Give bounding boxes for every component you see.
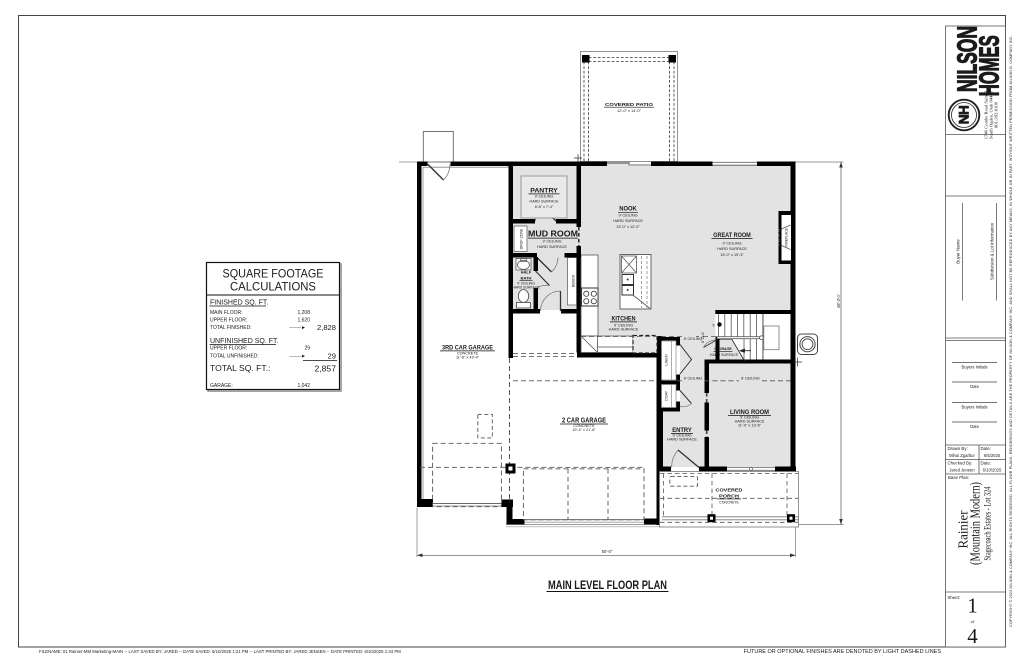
svg-text:BENCH: BENCH: [572, 274, 576, 287]
svg-text:Drawn By:: Drawn By:: [948, 446, 968, 451]
svg-text:Date:: Date:: [981, 461, 992, 466]
svg-text:NOOK: NOOK: [619, 206, 637, 213]
svg-text:UNFINISHED SQ. FT.: UNFINISHED SQ. FT.: [210, 338, 279, 345]
svg-text:Date:: Date:: [981, 446, 992, 451]
svg-text:48'-2¼": 48'-2¼": [836, 293, 841, 308]
svg-text:29: 29: [328, 352, 336, 361]
svg-text:Base Plan:: Base Plan:: [948, 475, 969, 480]
svg-text:15'-0" x 19'-3": 15'-0" x 19'-3": [720, 253, 744, 257]
svg-text:TOTAL SQ. FT.:: TOTAL SQ. FT.:: [210, 363, 270, 373]
svg-text:Stagecoach Estates - Lot 324: Stagecoach Estates - Lot 324: [984, 486, 994, 560]
svg-text:LINEN: LINEN: [665, 354, 669, 365]
svg-text:2,857: 2,857: [314, 364, 336, 374]
svg-text:Buyers Initials: Buyers Initials: [961, 405, 987, 410]
svg-text:HOMES: HOMES: [974, 35, 1005, 96]
svg-text:HARD SURFACE: HARD SURFACE: [717, 247, 747, 251]
svg-text:PANTRY: PANTRY: [530, 187, 558, 194]
svg-text:801-392-8100: 801-392-8100: [994, 101, 999, 128]
svg-text:8'-8" x 7'-4": 8'-8" x 7'-4": [535, 205, 554, 209]
svg-text:9' CEILING: 9' CEILING: [542, 240, 561, 244]
svg-text:2,828: 2,828: [317, 323, 336, 332]
svg-text:8' CEILING: 8' CEILING: [741, 377, 760, 381]
svg-text:Subdivision & Lot Information: Subdivision & Lot Information: [990, 222, 995, 280]
svg-text:HARD SURFACE: HARD SURFACE: [710, 353, 739, 357]
svg-text:Buyers Initials: Buyers Initials: [961, 365, 987, 370]
svg-text:NH: NH: [957, 106, 972, 125]
svg-text:11'-8" x 43'-4": 11'-8" x 43'-4": [456, 355, 480, 359]
svg-text:HARD SURFACE: HARD SURFACE: [512, 285, 540, 289]
svg-text:FINISHED SQ. FT.: FINISHED SQ. FT.: [210, 300, 268, 307]
svg-text:UPPER FLOOR:: UPPER FLOOR:: [210, 346, 247, 352]
svg-text:1,042: 1,042: [297, 383, 310, 389]
svg-text:HARD SURFACE: HARD SURFACE: [667, 437, 697, 441]
svg-text:MAIN LEVEL FLOOR PLAN: MAIN LEVEL FLOOR PLAN: [548, 578, 667, 592]
svg-text:Mihai Zgarbur: Mihai Zgarbur: [949, 453, 975, 458]
svg-text:19'-4" x 21'-8": 19'-4" x 21'-8": [572, 428, 596, 432]
svg-text:8' CEILING: 8' CEILING: [684, 337, 703, 341]
svg-text:HARD SURFACE: HARD SURFACE: [530, 200, 559, 204]
svg-text:29: 29: [304, 346, 310, 352]
svg-text:DROP ZONE: DROP ZONE: [520, 228, 524, 249]
svg-text:HARD SURFACE: HARD SURFACE: [537, 245, 567, 249]
svg-text:FUTURE OR OPTIONAL FINISHES AR: FUTURE OR OPTIONAL FINISHES ARE DENOTED …: [744, 649, 942, 655]
svg-text:50'-0": 50'-0": [602, 549, 613, 554]
svg-text:8' CLG: 8' CLG: [701, 332, 705, 343]
svg-text:COPYRIGHT © 2023 NILSON & C: COPYRIGHT © 2023 NILSON & COMPANY INC. A…: [1009, 35, 1013, 627]
svg-text:11'-0" x 13'-6": 11'-0" x 13'-6": [738, 423, 762, 427]
svg-text:Date: Date: [970, 424, 980, 429]
svg-text:1,620: 1,620: [297, 318, 310, 324]
svg-text:UPPER FLOOR:: UPPER FLOOR:: [210, 318, 247, 324]
svg-text:STORAGE: STORAGE: [714, 346, 732, 351]
svg-text:13'-0" x 12'-0": 13'-0" x 12'-0": [616, 225, 640, 229]
svg-text:6/5/2025: 6/5/2025: [984, 453, 1001, 458]
svg-text:12'-0" x 14'-0": 12'-0" x 14'-0": [617, 108, 642, 113]
svg-text:-------►: -------►: [289, 354, 306, 360]
svg-text:Buyer Name: Buyer Name: [956, 239, 961, 264]
svg-text:FILENAME: 01 Rainier-MM Marke: FILENAME: 01 Rainier-MM Marketing-MAIN -…: [39, 649, 401, 654]
svg-text:(Mountain Modern): (Mountain Modern): [969, 482, 984, 565]
svg-text:6/10/2025: 6/10/2025: [983, 468, 1002, 473]
svg-text:1,208: 1,208: [297, 310, 310, 316]
svg-text:BATH: BATH: [521, 275, 532, 280]
svg-text:Checked By:: Checked By:: [948, 461, 973, 466]
svg-text:1: 1: [967, 594, 978, 618]
svg-text:Sheet:: Sheet:: [948, 595, 961, 600]
svg-text:SQUARE FOOTAGE: SQUARE FOOTAGE: [223, 267, 324, 281]
svg-text:GREAT ROOM: GREAT ROOM: [713, 232, 751, 239]
svg-text:HALF: HALF: [521, 270, 532, 275]
svg-text:5: 5: [713, 324, 715, 328]
svg-text:CONCRETE: CONCRETE: [719, 500, 739, 504]
svg-text:KITCHEN: KITCHEN: [612, 315, 636, 322]
svg-text:8' CEILING: 8' CEILING: [684, 377, 703, 381]
svg-text:FIREPLACE: FIREPLACE: [785, 227, 789, 246]
svg-text:GARAGE:: GARAGE:: [210, 383, 233, 389]
svg-text:-------►: -------►: [289, 325, 306, 331]
svg-text:COVERED: COVERED: [716, 488, 744, 493]
svg-text:HARD SURFACE: HARD SURFACE: [609, 327, 639, 331]
svg-text:9' CEILING: 9' CEILING: [618, 213, 637, 217]
svg-text:TOTAL FINISHED:: TOTAL FINISHED:: [210, 325, 252, 331]
svg-text:Date: Date: [970, 384, 980, 389]
svg-text:CALCULATIONS: CALCULATIONS: [230, 280, 316, 294]
svg-text:9' CEILING: 9' CEILING: [535, 194, 554, 198]
svg-text:MAIN FLOOR:: MAIN FLOOR:: [210, 310, 243, 316]
svg-text:TOTAL UNFINISHED:: TOTAL UNFINISHED:: [210, 354, 259, 360]
svg-text:MUD ROOM: MUD ROOM: [528, 228, 578, 238]
svg-text:PORCH: PORCH: [719, 494, 740, 499]
svg-text:COAT: COAT: [665, 390, 669, 401]
svg-text:9' CEILING: 9' CEILING: [722, 242, 741, 246]
svg-text:Jared Jensen: Jared Jensen: [949, 468, 975, 473]
svg-text:4: 4: [967, 624, 978, 648]
svg-text:HARD SURFACE: HARD SURFACE: [613, 219, 643, 223]
